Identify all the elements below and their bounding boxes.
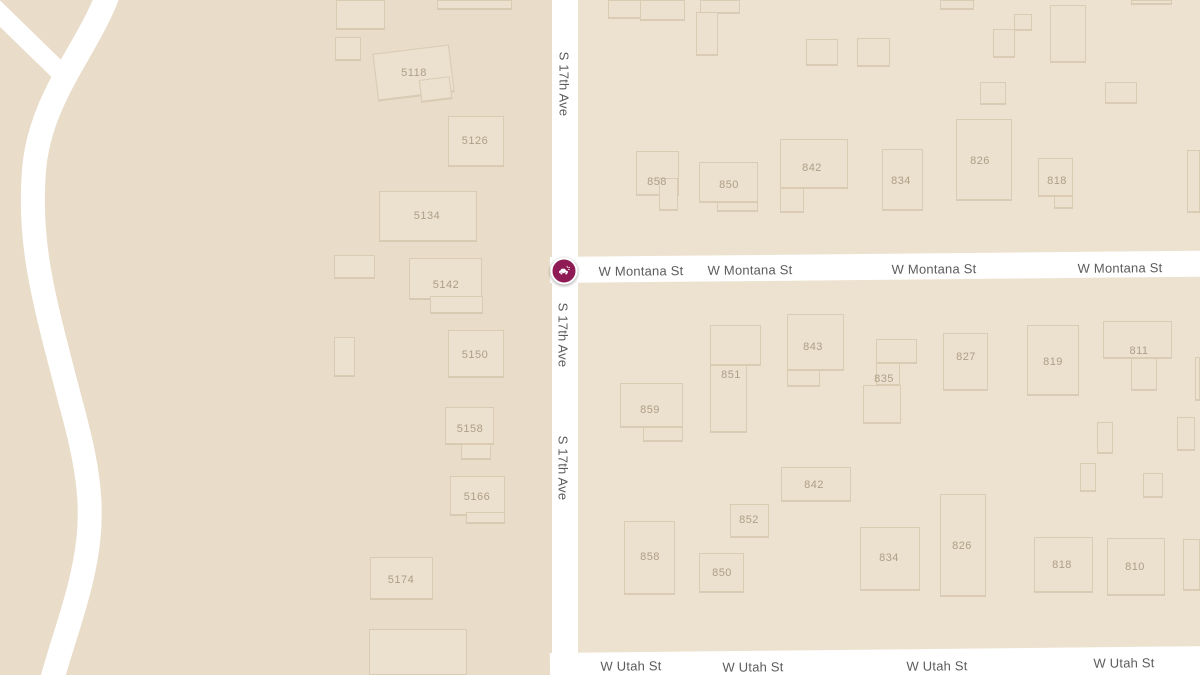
building-number-label: 851 <box>721 369 741 381</box>
curved-road <box>0 0 1200 675</box>
building-number-label: 835 <box>874 373 894 385</box>
street-name-label: W Montana St <box>892 261 977 277</box>
curved-road-branch <box>0 2 62 74</box>
building-number-label: 826 <box>952 540 972 552</box>
building-number-label: 5166 <box>464 491 490 503</box>
building-footprint <box>608 0 641 18</box>
building-number-label: 852 <box>739 514 759 526</box>
building-number-label: 843 <box>803 341 823 353</box>
building-number-label: 5126 <box>462 135 488 147</box>
building-number-label: 842 <box>804 479 824 491</box>
building-number-label: 5142 <box>433 279 459 291</box>
building-number-label: 5158 <box>457 423 483 435</box>
building-footprint <box>980 82 1006 104</box>
building-number-label: 5150 <box>462 349 488 361</box>
building-footprint <box>940 0 974 9</box>
building-footprint <box>466 512 505 523</box>
traffic-incident-marker[interactable] <box>551 258 578 285</box>
building-footprint <box>710 325 761 365</box>
street-name-label: S 17th Ave <box>556 436 571 501</box>
street-name-label: W Utah St <box>1093 655 1154 671</box>
building-number-label: 811 <box>1129 345 1148 357</box>
curved-road-main <box>33 0 110 675</box>
building-number-label: 826 <box>970 155 990 167</box>
building-footprint <box>876 339 917 363</box>
street-name-label: W Montana St <box>1078 260 1163 276</box>
street-name-label: W Utah St <box>722 659 783 675</box>
building-number-label: 5118 <box>401 67 427 79</box>
street-name-label: W Montana St <box>599 263 684 279</box>
building-footprint <box>1050 5 1086 62</box>
building-footprint <box>696 12 718 55</box>
building-footprint <box>1105 82 1137 103</box>
building-number-label: 858 <box>647 176 667 188</box>
building-footprint <box>334 337 355 376</box>
building-footprint <box>461 444 491 459</box>
building-footprint <box>335 37 361 60</box>
building-footprint <box>787 370 820 386</box>
building-footprint <box>643 427 683 441</box>
building-number-label: 834 <box>879 552 899 564</box>
building-footprint <box>1187 150 1200 212</box>
building-number-label: 842 <box>802 162 822 174</box>
building-footprint <box>1177 417 1195 450</box>
building-footprint <box>1183 539 1200 590</box>
building-footprint <box>993 29 1015 57</box>
building-footprint <box>1195 357 1200 400</box>
car-crash-icon <box>558 265 571 278</box>
building-number-label: 850 <box>719 179 739 191</box>
building-number-label: 850 <box>712 567 732 579</box>
map-canvas[interactable]: 5118512651345142515051585166517485885084… <box>0 0 1200 675</box>
building-footprint <box>1143 473 1163 497</box>
building-footprint <box>336 0 385 29</box>
building-footprint <box>1131 0 1172 4</box>
building-footprint <box>369 629 467 675</box>
building-number-label: 818 <box>1047 175 1067 187</box>
building-footprint <box>717 202 758 211</box>
building-number-label: 819 <box>1043 356 1063 368</box>
building-footprint <box>430 296 483 313</box>
building-footprint <box>437 0 512 9</box>
building-number-label: 834 <box>891 175 911 187</box>
street-name-label: S 17th Ave <box>557 52 572 117</box>
building-footprint <box>780 188 804 212</box>
street-name-label: W Utah St <box>906 658 967 674</box>
building-number-label: 858 <box>640 551 660 563</box>
building-footprint <box>334 255 375 278</box>
street-name-label: S 17th Ave <box>556 303 571 368</box>
building-footprint <box>1097 422 1113 453</box>
building-number-label: 5174 <box>388 574 414 586</box>
building-number-label: 810 <box>1125 561 1145 573</box>
building-footprint <box>640 0 685 20</box>
building-footprint <box>1080 463 1096 491</box>
street-name-label: W Montana St <box>708 262 793 278</box>
building-number-label: 827 <box>956 351 976 363</box>
building-number-label: 818 <box>1052 559 1072 571</box>
building-footprint <box>806 39 838 65</box>
building-footprint <box>1131 358 1157 390</box>
building-footprint <box>1054 196 1073 208</box>
building-footprint <box>1014 14 1032 30</box>
building-number-label: 5134 <box>414 210 440 222</box>
building-footprint <box>857 38 890 66</box>
building-footprint <box>419 76 452 102</box>
building-number-label: 859 <box>640 404 660 416</box>
street-name-label: W Utah St <box>600 658 661 674</box>
building-footprint <box>863 385 901 423</box>
